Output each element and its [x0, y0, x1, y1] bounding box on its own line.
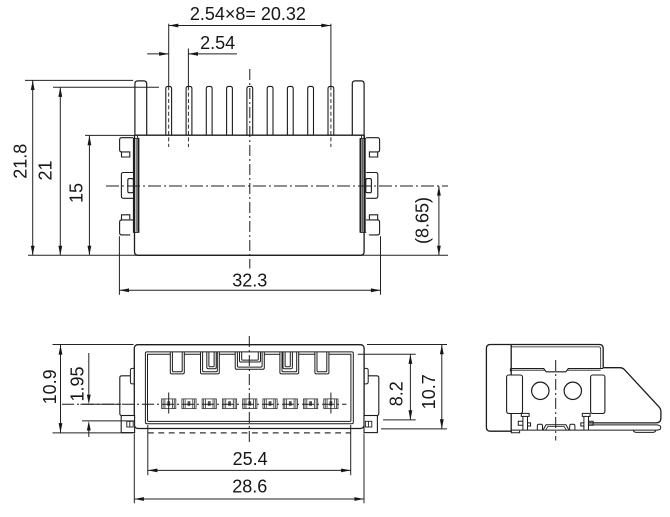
svg-text:15: 15	[66, 183, 86, 203]
svg-text:32.3: 32.3	[232, 270, 267, 290]
svg-text:2.54: 2.54	[200, 33, 235, 53]
svg-text:2.54×8= 20.32: 2.54×8= 20.32	[190, 4, 306, 24]
svg-text:1.95: 1.95	[68, 366, 88, 401]
svg-text:8.2: 8.2	[387, 381, 407, 406]
svg-text:21: 21	[35, 160, 55, 180]
svg-text:21.8: 21.8	[11, 144, 31, 179]
svg-text:10.9: 10.9	[40, 369, 60, 404]
svg-text:10.7: 10.7	[419, 374, 439, 409]
svg-text:(8.65): (8.65)	[413, 197, 433, 244]
svg-text:28.6: 28.6	[232, 477, 267, 497]
svg-text:25.4: 25.4	[233, 449, 268, 469]
